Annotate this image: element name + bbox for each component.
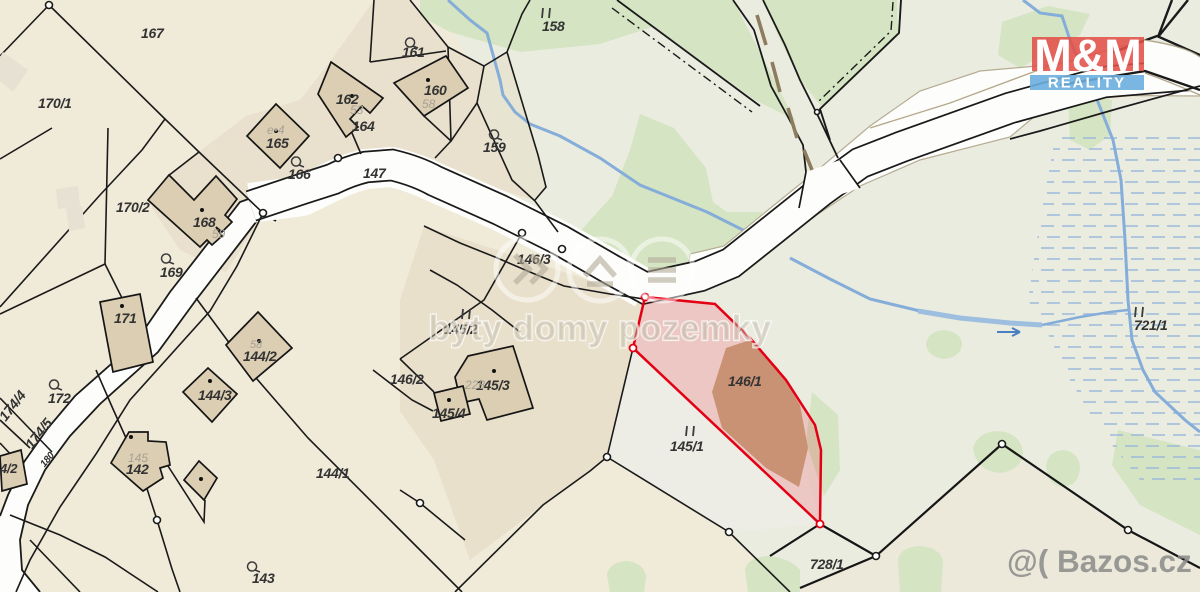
svg-text:REALITY: REALITY: [1048, 75, 1126, 92]
svg-text:172: 172: [48, 390, 71, 406]
svg-text:144/1: 144/1: [316, 465, 350, 481]
svg-text:170/2: 170/2: [116, 199, 150, 215]
svg-text:e•4: e•4: [267, 123, 285, 137]
svg-text:147: 147: [363, 165, 387, 181]
svg-text:171: 171: [114, 310, 137, 326]
svg-text:143: 143: [252, 570, 275, 586]
svg-text:728/1: 728/1: [810, 556, 844, 572]
svg-text:160: 160: [424, 82, 447, 98]
svg-text:158: 158: [542, 18, 565, 34]
svg-text:169: 169: [160, 264, 183, 280]
svg-text:146/2: 146/2: [390, 371, 424, 387]
svg-text:146/1: 146/1: [728, 373, 762, 389]
svg-text:165: 165: [266, 135, 289, 151]
svg-text:4/2: 4/2: [0, 461, 18, 476]
svg-text:228: 228: [464, 378, 485, 392]
svg-text:144/3: 144/3: [198, 387, 232, 403]
svg-text:164: 164: [352, 118, 375, 134]
svg-text:145/4: 145/4: [432, 405, 466, 421]
svg-text:53: 53: [350, 103, 364, 117]
svg-text:721/1: 721/1: [1134, 317, 1168, 333]
svg-text:58: 58: [422, 97, 436, 111]
svg-text:167: 167: [141, 25, 165, 41]
svg-text:58: 58: [250, 339, 263, 351]
svg-text:byty domy pozemky: byty domy pozemky: [428, 309, 771, 348]
svg-text:166: 166: [288, 166, 311, 182]
svg-text:145: 145: [128, 451, 148, 465]
svg-text:59: 59: [212, 227, 226, 241]
svg-text:M&M: M&M: [1034, 30, 1141, 81]
svg-text:@( Bazos.cz: @( Bazos.cz: [1007, 543, 1192, 579]
svg-text:145/1: 145/1: [670, 438, 704, 454]
svg-text:170/1: 170/1: [38, 95, 72, 111]
svg-text:159: 159: [483, 139, 506, 155]
